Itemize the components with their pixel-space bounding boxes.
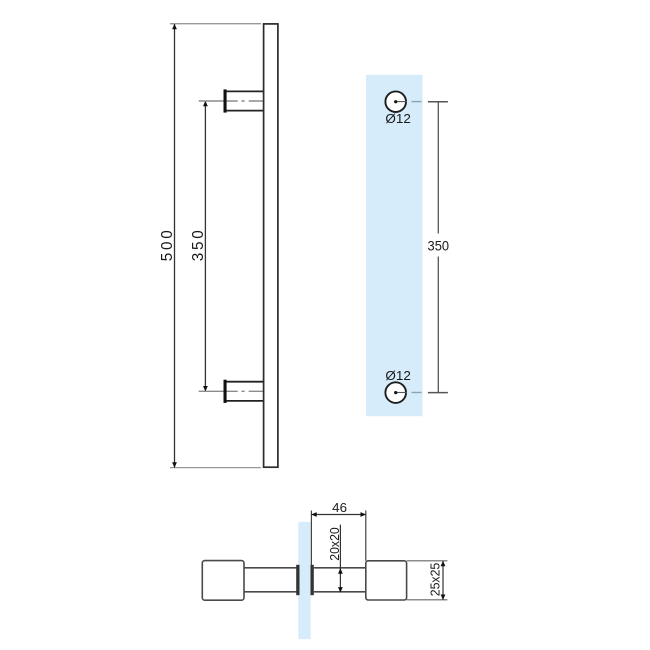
svg-text:350: 350 — [190, 230, 207, 261]
svg-text:Ø12: Ø12 — [385, 112, 411, 126]
svg-text:25x25: 25x25 — [428, 563, 443, 597]
svg-text:350: 350 — [428, 238, 450, 254]
svg-text:46: 46 — [332, 501, 347, 515]
svg-text:500: 500 — [159, 230, 176, 261]
svg-text:20x20: 20x20 — [327, 527, 342, 561]
svg-text:Ø12: Ø12 — [385, 369, 411, 383]
